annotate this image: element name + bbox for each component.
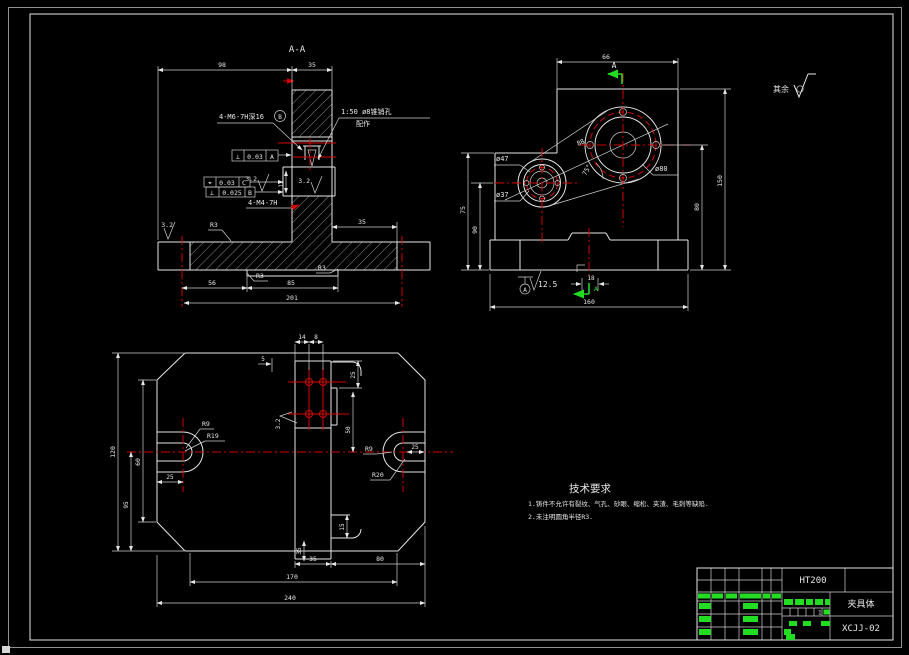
dim: 18 <box>587 275 595 282</box>
svg-text:A: A <box>523 287 527 294</box>
title-block: HT200 夹具体 XCJJ-02 1 <box>697 568 893 640</box>
section-title: A-A <box>289 45 306 55</box>
side-outline <box>490 89 688 270</box>
dim: 98 <box>218 61 226 69</box>
svg-text:⊥: ⊥ <box>210 189 214 197</box>
taper-pin-note: 1:50 ø8锥销孔 配作 <box>318 107 430 159</box>
svg-text:⊥: ⊥ <box>236 153 240 161</box>
boss-tangent-lines <box>505 111 668 205</box>
svg-text:0.025: 0.025 <box>222 189 242 197</box>
svg-text:3.2: 3.2 <box>298 177 310 185</box>
dim-angle: 75° <box>581 163 594 177</box>
fcf-perpendicularity-b: ⊥ 0.025 B <box>206 187 283 197</box>
svg-text:配作: 配作 <box>356 119 370 128</box>
rest-label: 其余 <box>773 84 789 94</box>
svg-text:R3: R3 <box>318 264 326 272</box>
hatch-column <box>292 196 332 242</box>
highlighted-fields <box>698 594 830 641</box>
dim: 5 <box>261 356 265 363</box>
fcf-position-c: ⌖ 0.03 C <box>204 177 283 187</box>
dim: 160 <box>583 298 595 306</box>
drawing-number-field: XCJJ-02 <box>842 624 880 634</box>
svg-text:A: A <box>594 285 598 293</box>
svg-text:3.2: 3.2 <box>161 221 173 229</box>
svg-text:B: B <box>248 189 252 197</box>
center-boss <box>295 361 361 559</box>
dim: 14 <box>298 334 306 341</box>
dim: 80 <box>693 203 701 211</box>
roughness-cast-icon <box>794 74 816 97</box>
dim: 85 <box>287 279 295 287</box>
technical-requirements: 技术要求 1.铸件不允许有裂纹、气孔、砂眼、缩松、夹渣、毛刺等缺陷. 2.未注明… <box>528 482 709 521</box>
corner-artifact <box>2 646 10 653</box>
material-field: HT200 <box>799 576 826 586</box>
dim: 50 <box>345 426 352 434</box>
dim: 35 <box>358 218 366 226</box>
dim: 66 <box>602 53 610 61</box>
dim: 12 <box>278 180 285 188</box>
svg-text:4-M6-7H深16: 4-M6-7H深16 <box>219 112 264 121</box>
hatch-upper <box>292 90 332 137</box>
svg-text:ø80: ø80 <box>655 165 668 173</box>
plan-centerlines <box>127 418 453 492</box>
dim: 15 <box>339 523 346 531</box>
tech-req-title: 技术要求 <box>569 482 611 495</box>
dim: 8 <box>314 334 318 341</box>
plan-view: 14 8 5 25 50 15 120 60 95 25 25 35 35 80… <box>109 334 453 607</box>
svg-text:4-M4-7H: 4-M4-7H <box>248 199 278 207</box>
tech-req-item: 2.未注明圆角半径R3. <box>528 512 593 521</box>
hole-marks <box>288 367 349 430</box>
svg-text:12.5: 12.5 <box>538 280 557 289</box>
svg-text:R9: R9 <box>365 445 373 453</box>
thread-callout-m6: 4-M6-7H深16 B <box>217 111 302 151</box>
svg-text:R20: R20 <box>372 471 384 479</box>
svg-text:ø47: ø47 <box>496 155 509 163</box>
svg-text:A: A <box>270 153 274 161</box>
svg-text:3.2: 3.2 <box>275 418 282 429</box>
dim: 201 <box>286 294 298 302</box>
thread-callout-m4: 4-M4-7H <box>246 199 299 208</box>
svg-text:⌖: ⌖ <box>208 179 212 187</box>
general-roughness-note: 其余 <box>773 74 816 97</box>
svg-text:R3: R3 <box>210 221 218 229</box>
svg-text:3.2: 3.2 <box>245 175 257 183</box>
dim: 25 <box>166 474 174 481</box>
svg-text:1:50 ø8锥销孔: 1:50 ø8锥销孔 <box>341 107 392 116</box>
section-arrow-top: A <box>608 61 622 84</box>
svg-text:R9: R9 <box>202 420 210 428</box>
dim: 56 <box>208 279 216 287</box>
dim-centers: 88 <box>575 137 586 148</box>
sheet-frame <box>2 8 902 654</box>
roughness-icon-plan: 3.2 <box>275 412 297 429</box>
side-view: ø80 ø47 ø37 88 75° 66 75 90 80 150 160 1… <box>459 53 731 311</box>
dim: 80 <box>376 555 384 563</box>
dim: 170 <box>286 573 298 581</box>
svg-text:B: B <box>278 114 282 121</box>
dim: 25 <box>350 371 357 379</box>
taper-pin-detail <box>308 150 316 166</box>
fcf-perpendicularity-a: ⊥ 0.03 A <box>232 150 291 161</box>
dim: 75 <box>459 206 467 214</box>
svg-text:R3: R3 <box>256 272 264 280</box>
dim: 35 <box>309 555 317 563</box>
dim: 120 <box>109 446 117 458</box>
svg-text:R19: R19 <box>207 432 219 440</box>
cad-drawing-sheet: A-A 98 35 35 12 56 85 201 4-M6-7H深16 <box>0 0 909 655</box>
dim: 60 <box>134 458 142 466</box>
dim: 35 <box>296 547 303 555</box>
svg-text:0.03: 0.03 <box>219 179 235 187</box>
hatch-base <box>190 242 397 270</box>
svg-text:0.03: 0.03 <box>247 153 263 161</box>
tech-req-item: 1.铸件不允许有裂纹、气孔、砂眼、缩松、夹渣、毛刺等缺陷. <box>528 499 709 508</box>
sheet-number: 1 <box>818 610 822 617</box>
section-view: A-A 98 35 35 12 56 85 201 4-M6-7H深16 <box>158 45 430 307</box>
roughness-12-5: 12.5 <box>530 271 557 290</box>
dim: 25 <box>411 444 419 451</box>
dim: 240 <box>284 594 296 602</box>
dim: 150 <box>716 175 724 187</box>
dim: 90 <box>471 226 479 234</box>
dim: 95 <box>123 501 130 509</box>
svg-text:A: A <box>612 61 617 70</box>
dim: 35 <box>308 61 316 69</box>
part-name-field: 夹具体 <box>847 598 874 610</box>
svg-text:ø37: ø37 <box>496 191 509 199</box>
